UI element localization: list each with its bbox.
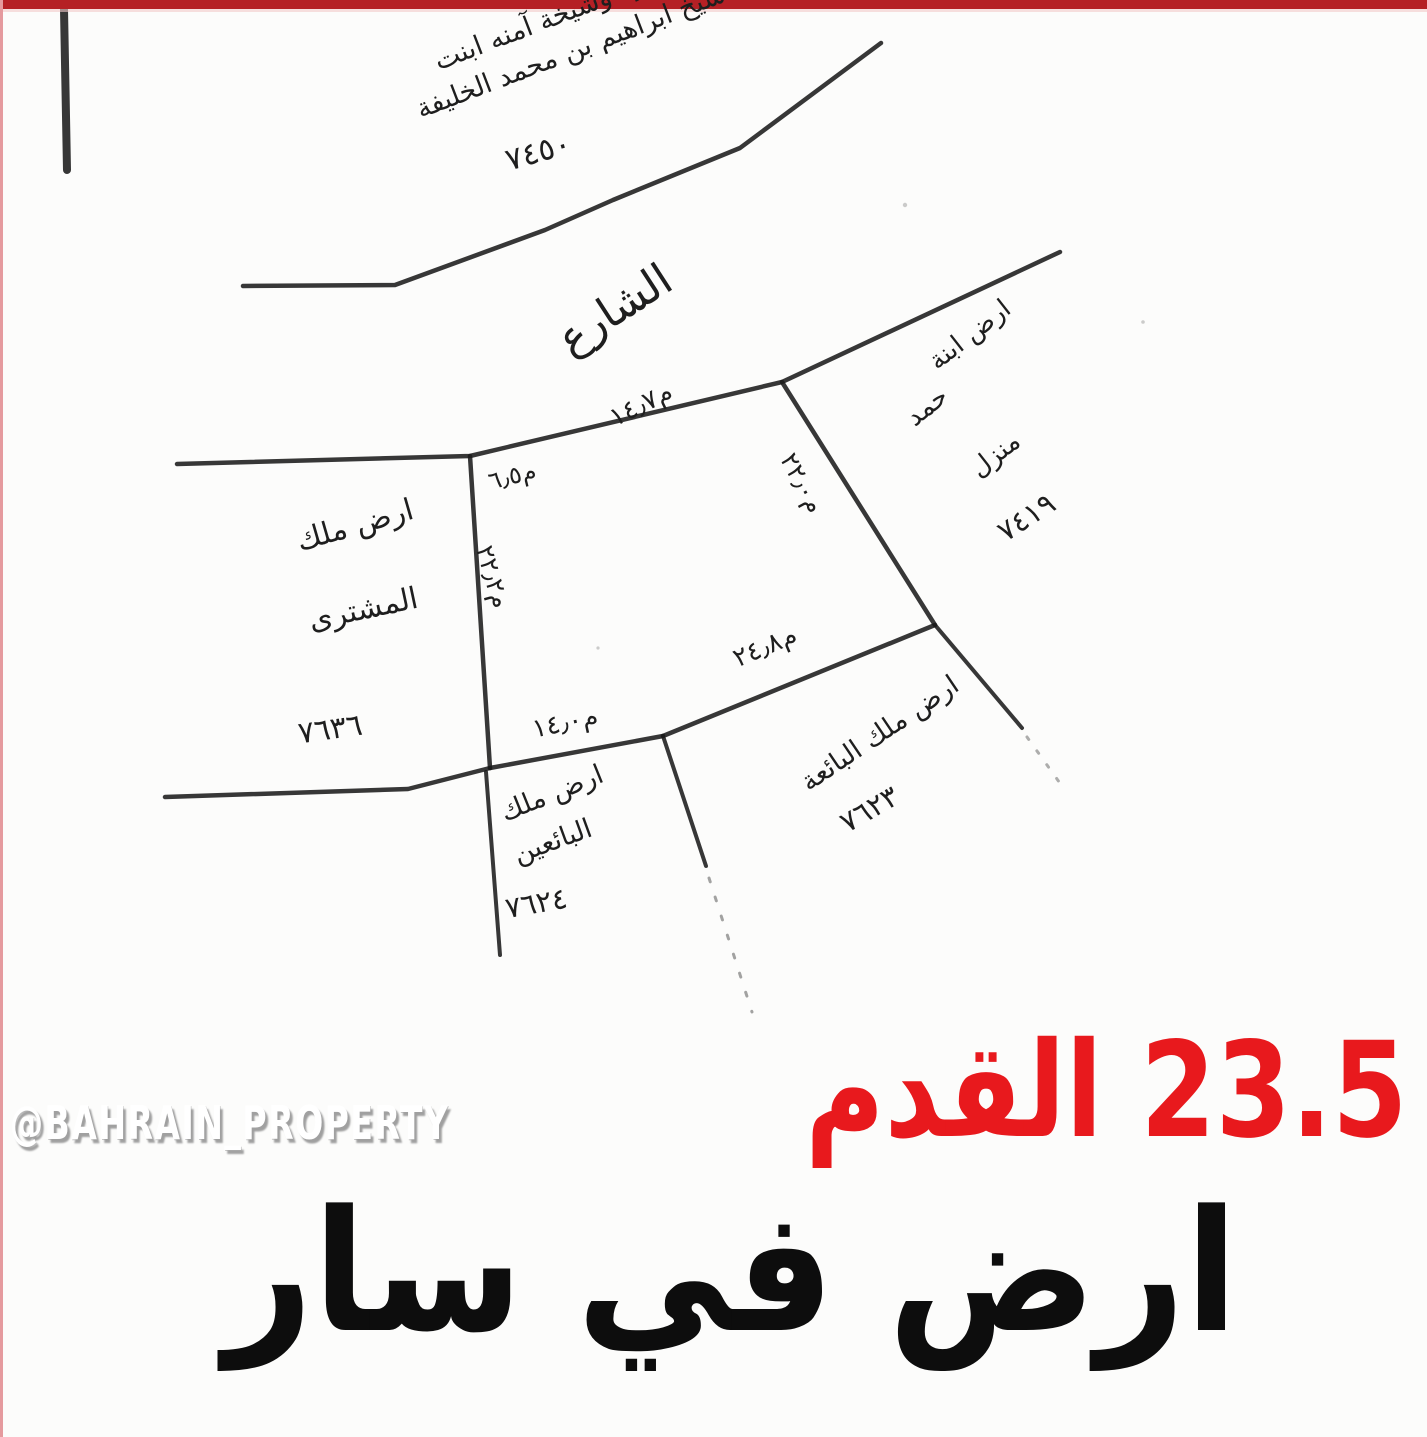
watermark-handle: @BAHRAIN_PROPERTY — [10, 1096, 449, 1150]
left-pink-border — [0, 0, 3, 1437]
price-per-foot-text: 23.5 القدم — [805, 1022, 1407, 1161]
scan-corner-bar — [64, 9, 67, 170]
scan-specks — [596, 203, 1144, 650]
plot-left-edge — [470, 456, 490, 768]
boundary-7419-southeast-faint — [1027, 737, 1062, 786]
road-upper-edge-line — [243, 43, 881, 286]
plot-sketch-drawing — [0, 0, 1427, 1030]
boundary-7636-south — [165, 768, 490, 797]
advert-title-text: ارض في سار — [272, 1172, 1238, 1374]
land-advert-canvas: شيخة موزه وشيخة آمنه ابنت شيخ ابراهيم بن… — [0, 0, 1427, 1437]
divider-7624-7623-faint — [709, 878, 752, 1012]
plot-back-edge — [490, 736, 663, 768]
divider-7624-7623 — [663, 736, 706, 866]
